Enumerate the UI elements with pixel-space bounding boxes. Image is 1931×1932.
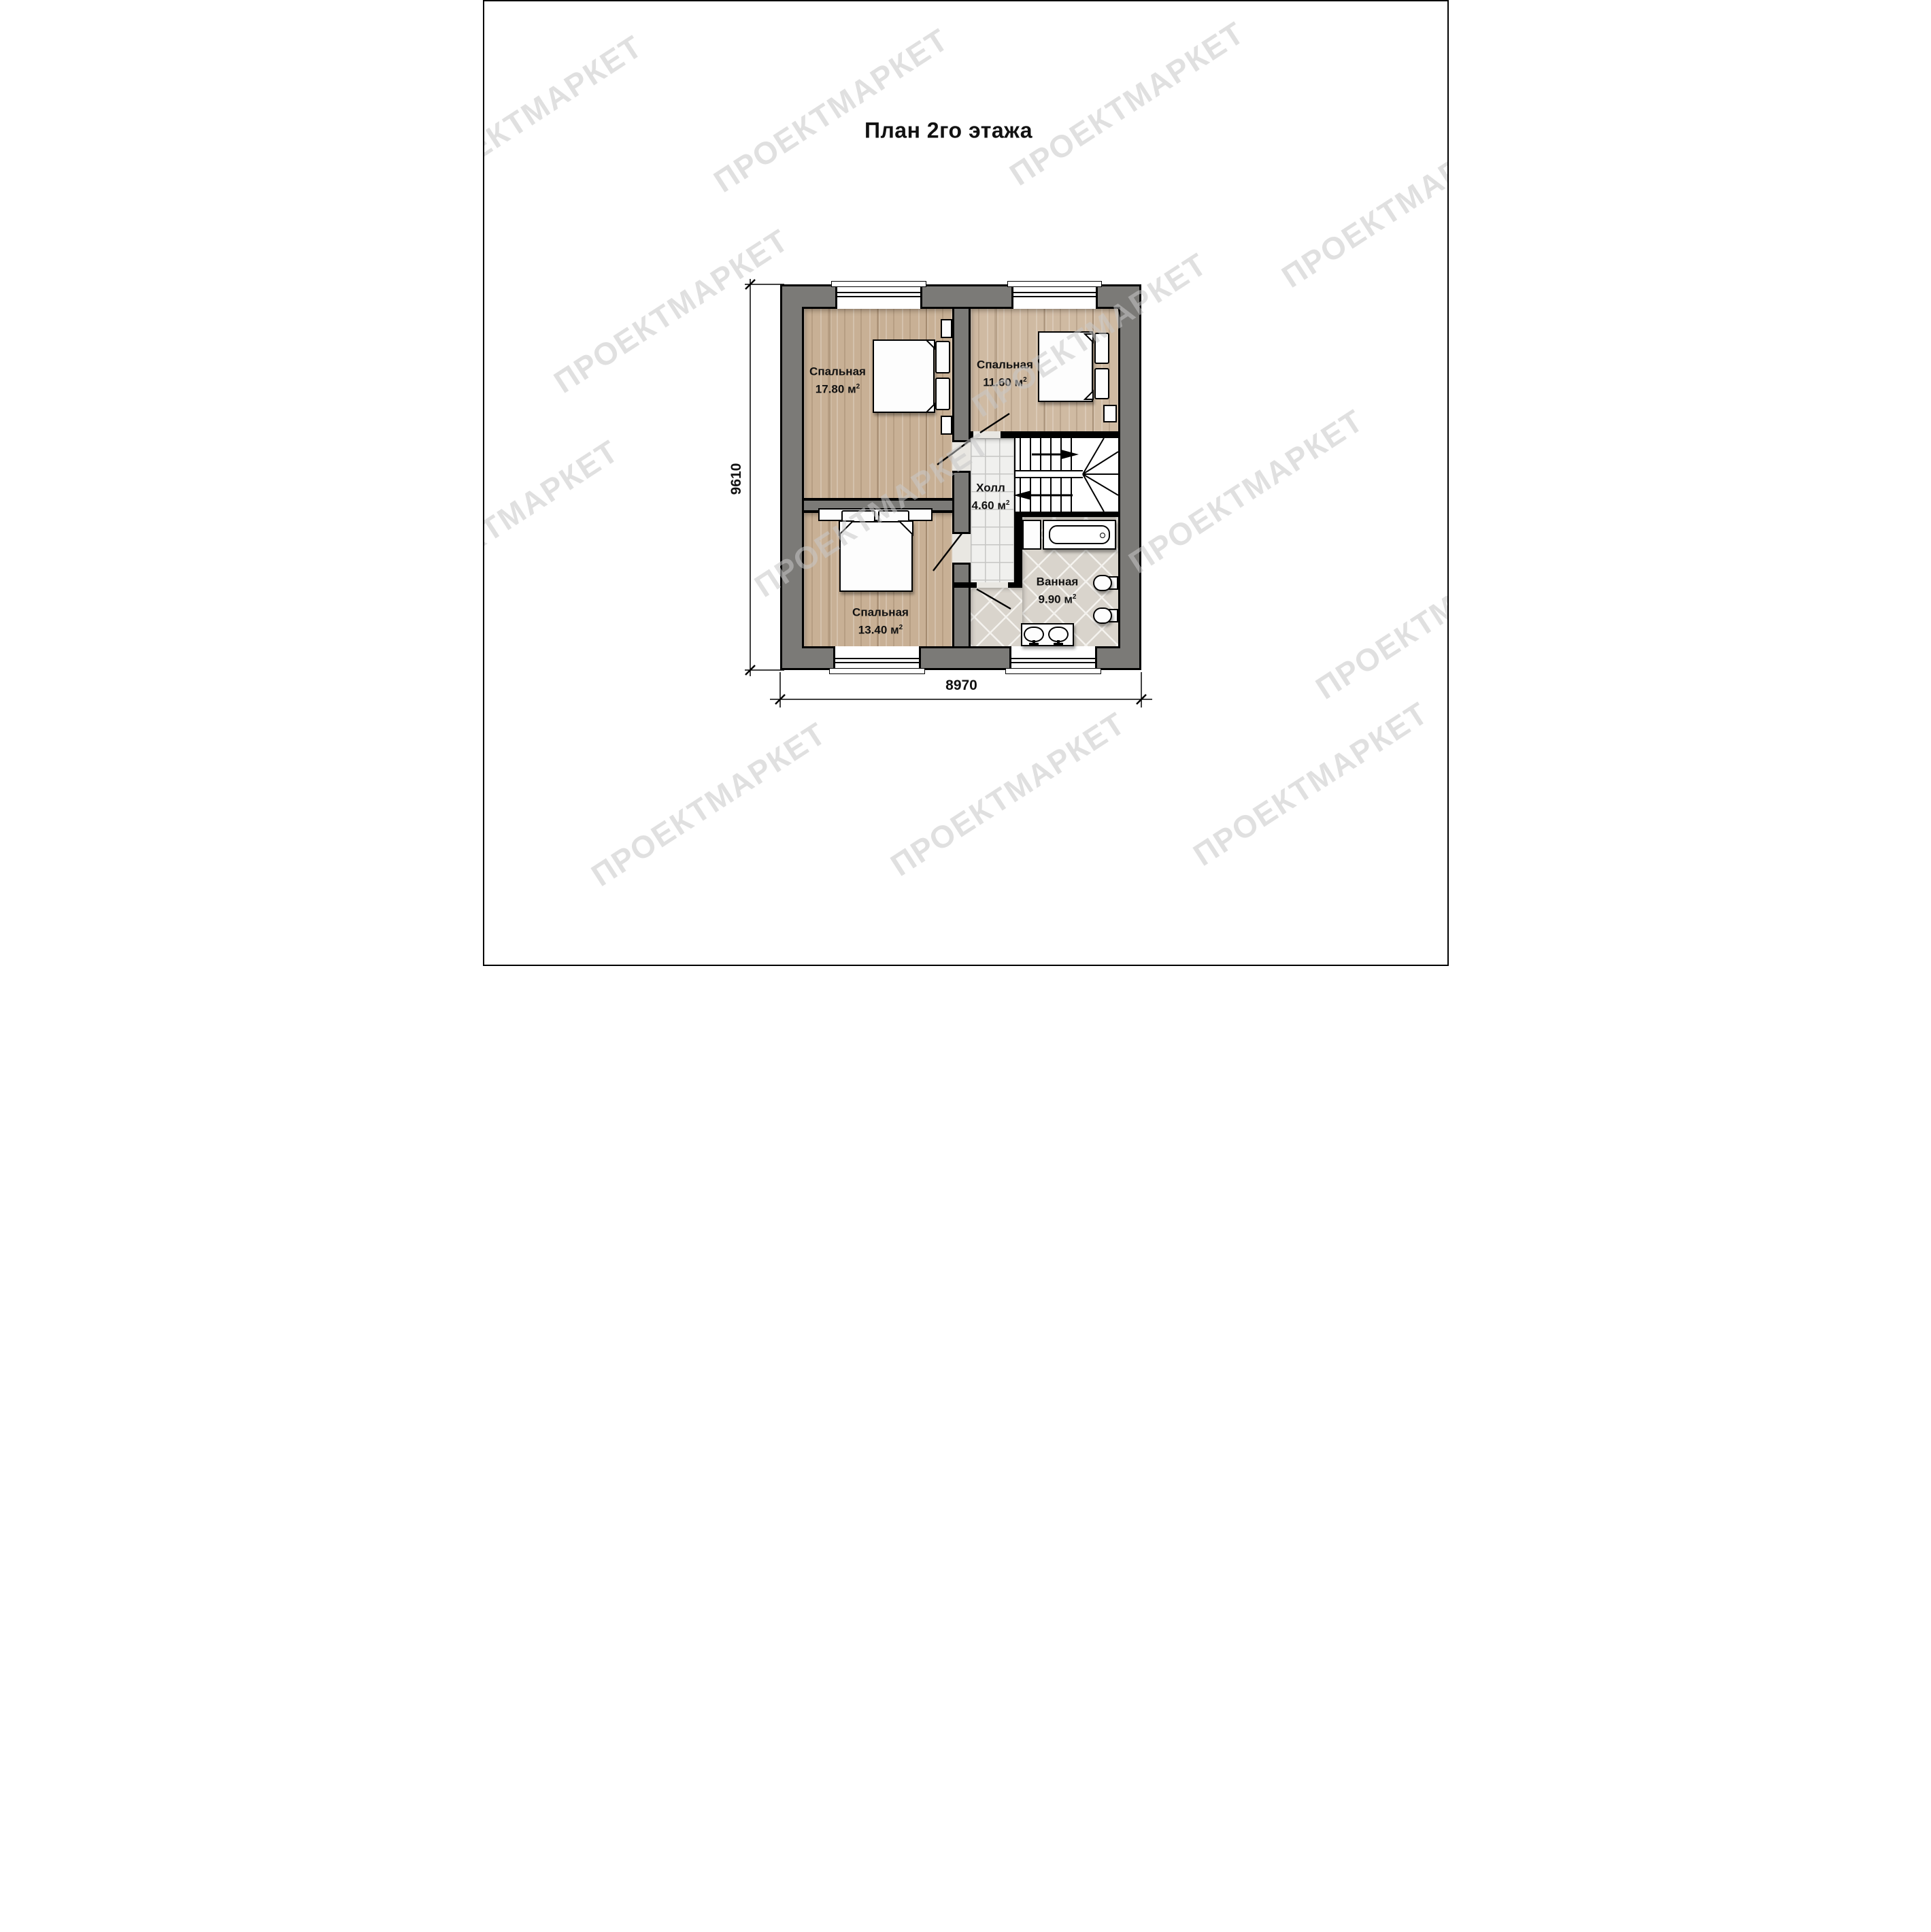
toilet [1093,575,1112,591]
bathroom-cabinet [1022,520,1041,550]
watermark: ПРОЕКТМАРКЕТ [1122,401,1370,580]
faucet-icon [1054,643,1063,645]
pillow [935,341,950,373]
window-bottom-left-sill [829,668,925,674]
watermark: ПРОЕКТМАРКЕТ [483,432,625,611]
watermark: ПРОЕКТМАРКЕТ [584,714,833,893]
nightstand [1103,405,1117,422]
window-top-left-sill [831,281,926,287]
watermark: ПРОЕКТМАРКЕТ [1275,116,1448,295]
watermark: ПРОЕКТМАРКЕТ [707,20,955,199]
room-label-bedroom-lower: Спальная 13.40 м2 [852,604,909,640]
pillow [1094,333,1109,364]
watermark: ПРОЕКТМАРКЕТ [884,704,1132,883]
room-area: 9.90 м2 [1039,593,1077,606]
bidet [1093,607,1112,624]
page-title: План 2го этажа [864,118,1032,144]
faucet-icon [1029,643,1039,645]
sink-counter [1021,623,1074,646]
window-top-right-sill [1007,281,1102,287]
room-area: 11.60 м2 [983,376,1026,389]
room-area: 17.80 м2 [816,383,860,396]
bathtub [1043,520,1116,550]
dimension-label-left: 9610 [728,463,745,495]
room-name: Спальная [977,359,1033,371]
watermark: ПРОЕКТМАРКЕТ [547,221,795,400]
room-name: Холл [976,482,1005,495]
bed-headboard [818,508,933,521]
bathtub-drain [1100,533,1105,538]
watermark: ПРОЕКТМАРКЕТ [1309,527,1448,706]
bed-bedroom-large [873,339,935,413]
pillow [1094,368,1109,399]
pillow [935,378,950,410]
room-label-bedroom-right: Спальная 11.60 м2 [977,356,1033,393]
window-bottom-right-sill [1005,668,1101,674]
room-label-bedroom-large: Спальная 17.80 м2 [809,363,866,399]
nightstand [941,319,952,338]
room-name: Ванная [1037,576,1079,588]
room-name: Спальная [809,365,866,378]
bed-bedroom-lower [839,521,913,592]
room-area: 13.40 м2 [858,624,903,637]
window-bottom-right [1009,646,1097,669]
watermark: ПРОЕКТМАРКЕТ [1003,14,1251,193]
room-area: 4.60 м2 [972,499,1010,512]
watermark: ПРОЕКТМАРКЕТ [483,27,649,206]
room-label-hall: Холл 4.60 м2 [972,480,1010,516]
room-name: Спальная [852,606,909,619]
window-bottom-left [833,646,921,669]
floor-plan-page: План 2го этажа [483,0,1449,966]
dimension-left [745,279,784,676]
nightstand [941,416,952,435]
watermark: ПРОЕКТМАРКЕТ [1186,694,1434,873]
room-label-bathroom: Ванная 9.90 м2 [1037,573,1079,610]
window-top-left [835,286,922,309]
window-top-right [1011,286,1098,309]
bed-bedroom-right [1038,331,1093,402]
dimension-label-bottom: 8970 [945,678,977,694]
